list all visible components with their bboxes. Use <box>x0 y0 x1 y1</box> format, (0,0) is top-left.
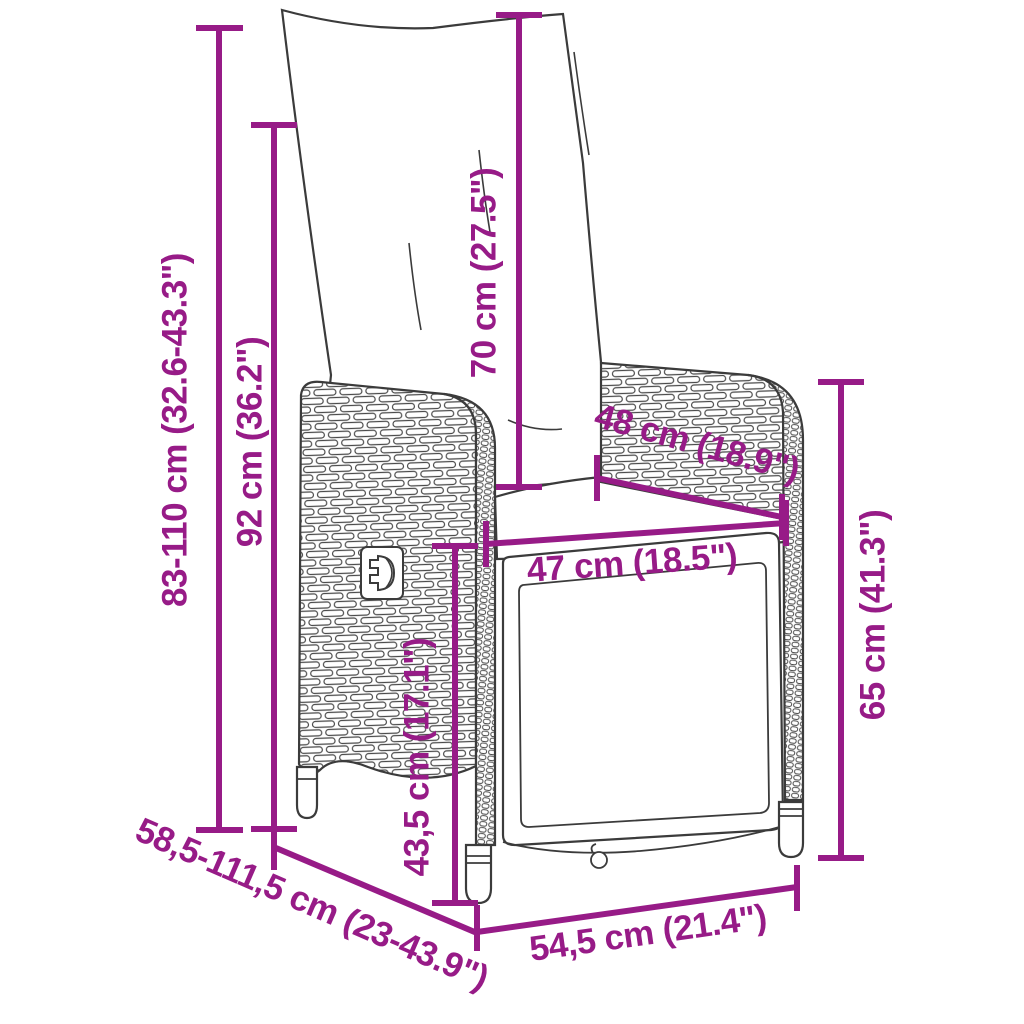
front-left-leg <box>466 845 491 903</box>
label-overall-height: 83-110 cm (32.6-43.3") <box>158 253 193 607</box>
label-back-cushion-height: 70 cm (27.5") <box>467 168 502 379</box>
label-seat-height: 43,5 cm (17.1") <box>400 638 435 877</box>
keyhole-plate <box>361 547 403 599</box>
label-backrest-height: 92 cm (36.2") <box>233 337 268 548</box>
latch-ring <box>591 852 607 868</box>
label-side-height: 65 cm (41.3") <box>856 510 891 721</box>
back-left-leg <box>297 767 317 818</box>
front-right-leg <box>779 802 803 857</box>
latch-hook <box>592 844 596 853</box>
dimension-diagram: 83-110 cm (32.6-43.3") 92 cm (36.2") 70 … <box>0 0 1024 1024</box>
